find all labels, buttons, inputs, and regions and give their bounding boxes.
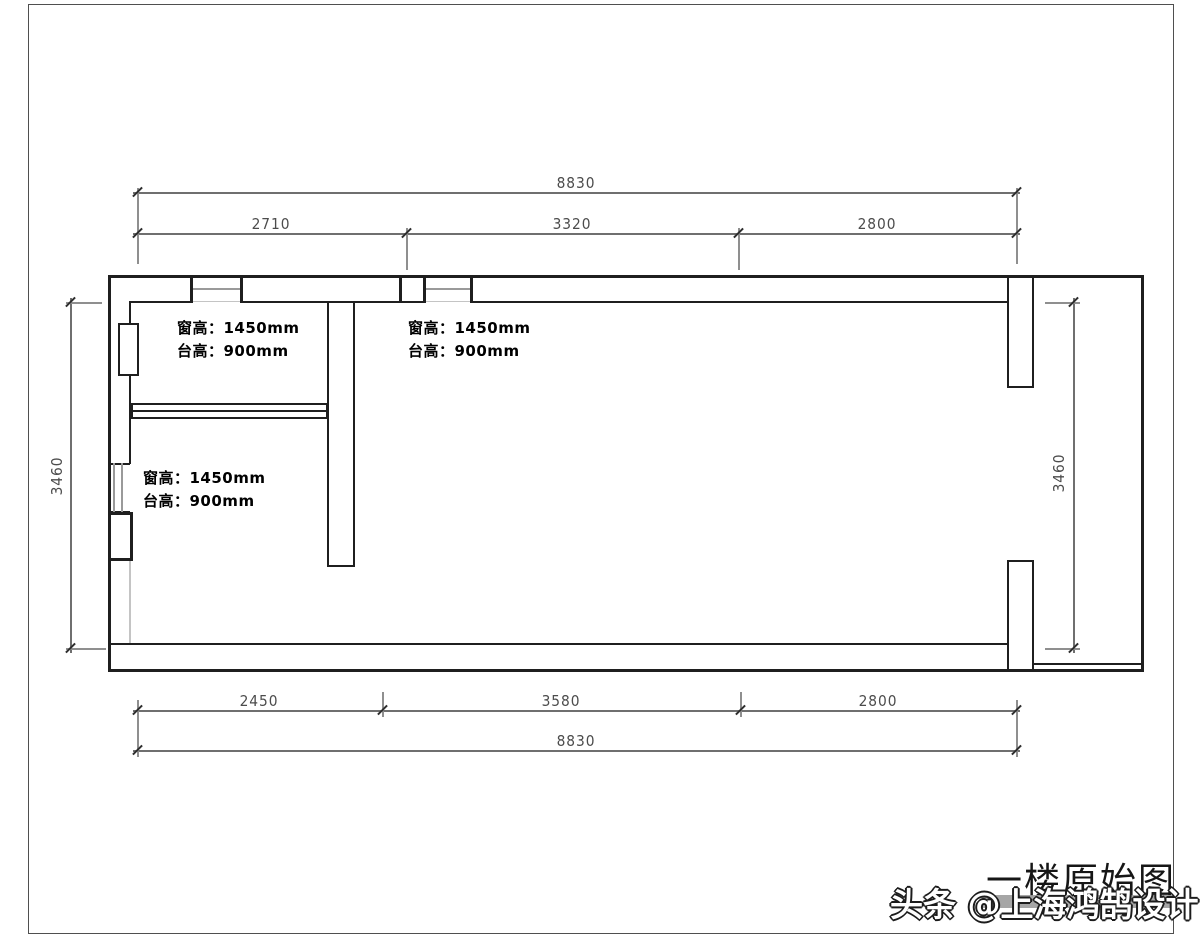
wall-pier-block xyxy=(108,512,133,561)
wall-right-segment-top xyxy=(1007,276,1034,388)
dim-label-top-overall: 8830 xyxy=(547,174,606,192)
dim-label-bottom-seg3: 2800 xyxy=(849,692,908,710)
annotation-room3-window-height: 窗高：1450mm xyxy=(143,467,266,488)
dim-right-line xyxy=(1073,298,1075,653)
dim-ext-right-bottom xyxy=(1045,648,1080,650)
dim-ext-top-left xyxy=(137,188,139,264)
window-top-1-left-jamb xyxy=(190,275,193,303)
dim-label-top-seg1: 2710 xyxy=(242,215,301,233)
dim-ext-right-top xyxy=(1045,302,1080,304)
window-top-1-glass-line xyxy=(192,288,242,290)
wall-left-outer xyxy=(108,275,111,672)
annotation-room2-sill-height: 台高：900mm xyxy=(408,340,520,361)
window-top-2-right-jamb xyxy=(470,275,473,303)
annotation-room1-sill-height: 台高：900mm xyxy=(177,340,289,361)
window-top-2-left-jamb xyxy=(423,275,426,303)
annotation-room1-window-height: 窗高：1450mm xyxy=(177,317,300,338)
dim-label-top-seg2: 3320 xyxy=(543,215,602,233)
dim-label-bottom-seg2: 3580 xyxy=(532,692,591,710)
partition-wall-horizontal-midline xyxy=(131,410,328,412)
wall-left-inner-seg2 xyxy=(129,376,131,464)
dim-ext-bottom-mid2 xyxy=(740,692,742,717)
watermark-text: 头条 @上海鸿鹄设计 xyxy=(890,878,1199,926)
dim-top-overall-line xyxy=(133,192,1020,194)
window-top-2-pier-edge xyxy=(399,275,402,303)
dim-label-right: 3460 xyxy=(1050,444,1068,503)
dim-top-segments-line xyxy=(133,233,1020,235)
annotation-room2-window-height: 窗高：1450mm xyxy=(408,317,531,338)
wall-top-inner-seg1 xyxy=(129,301,192,303)
dim-ext-left-bottom xyxy=(66,648,106,650)
opening-left-lower-line xyxy=(129,561,131,645)
dim-bottom-overall-line xyxy=(133,750,1020,752)
window-top-1-right-jamb xyxy=(240,275,243,303)
dim-label-left: 3460 xyxy=(48,447,66,506)
wall-right-outer xyxy=(1141,275,1144,672)
dim-ext-bottom-mid1 xyxy=(382,692,384,717)
window-left-glass-line-2 xyxy=(121,463,123,513)
dim-label-top-seg3: 2800 xyxy=(848,215,907,233)
wall-top-outer xyxy=(108,275,1144,278)
wall-bottom-right-step-line xyxy=(1033,663,1141,665)
annotation-room3-sill-height: 台高：900mm xyxy=(143,490,255,511)
dim-label-bottom-seg1: 2450 xyxy=(230,692,289,710)
wall-niche-box xyxy=(118,323,139,376)
partition-wall-vertical xyxy=(327,301,355,567)
window-left-glass-line-1 xyxy=(113,463,115,513)
wall-left-inner-seg1 xyxy=(129,301,131,325)
wall-bottom-inner xyxy=(109,643,1007,645)
window-top-1-sill-line xyxy=(192,301,242,302)
dim-ext-top-right xyxy=(1016,188,1018,264)
wall-top-inner-seg3 xyxy=(471,301,1007,303)
window-top-2-glass-line xyxy=(425,288,472,290)
dim-left-line xyxy=(70,298,72,653)
dim-label-bottom-overall: 8830 xyxy=(547,732,606,750)
wall-bottom-outer xyxy=(108,669,1144,672)
wall-right-segment-bottom xyxy=(1007,560,1034,672)
window-top-2-sill-line xyxy=(425,301,472,302)
dim-bottom-segments-line xyxy=(133,710,1020,712)
